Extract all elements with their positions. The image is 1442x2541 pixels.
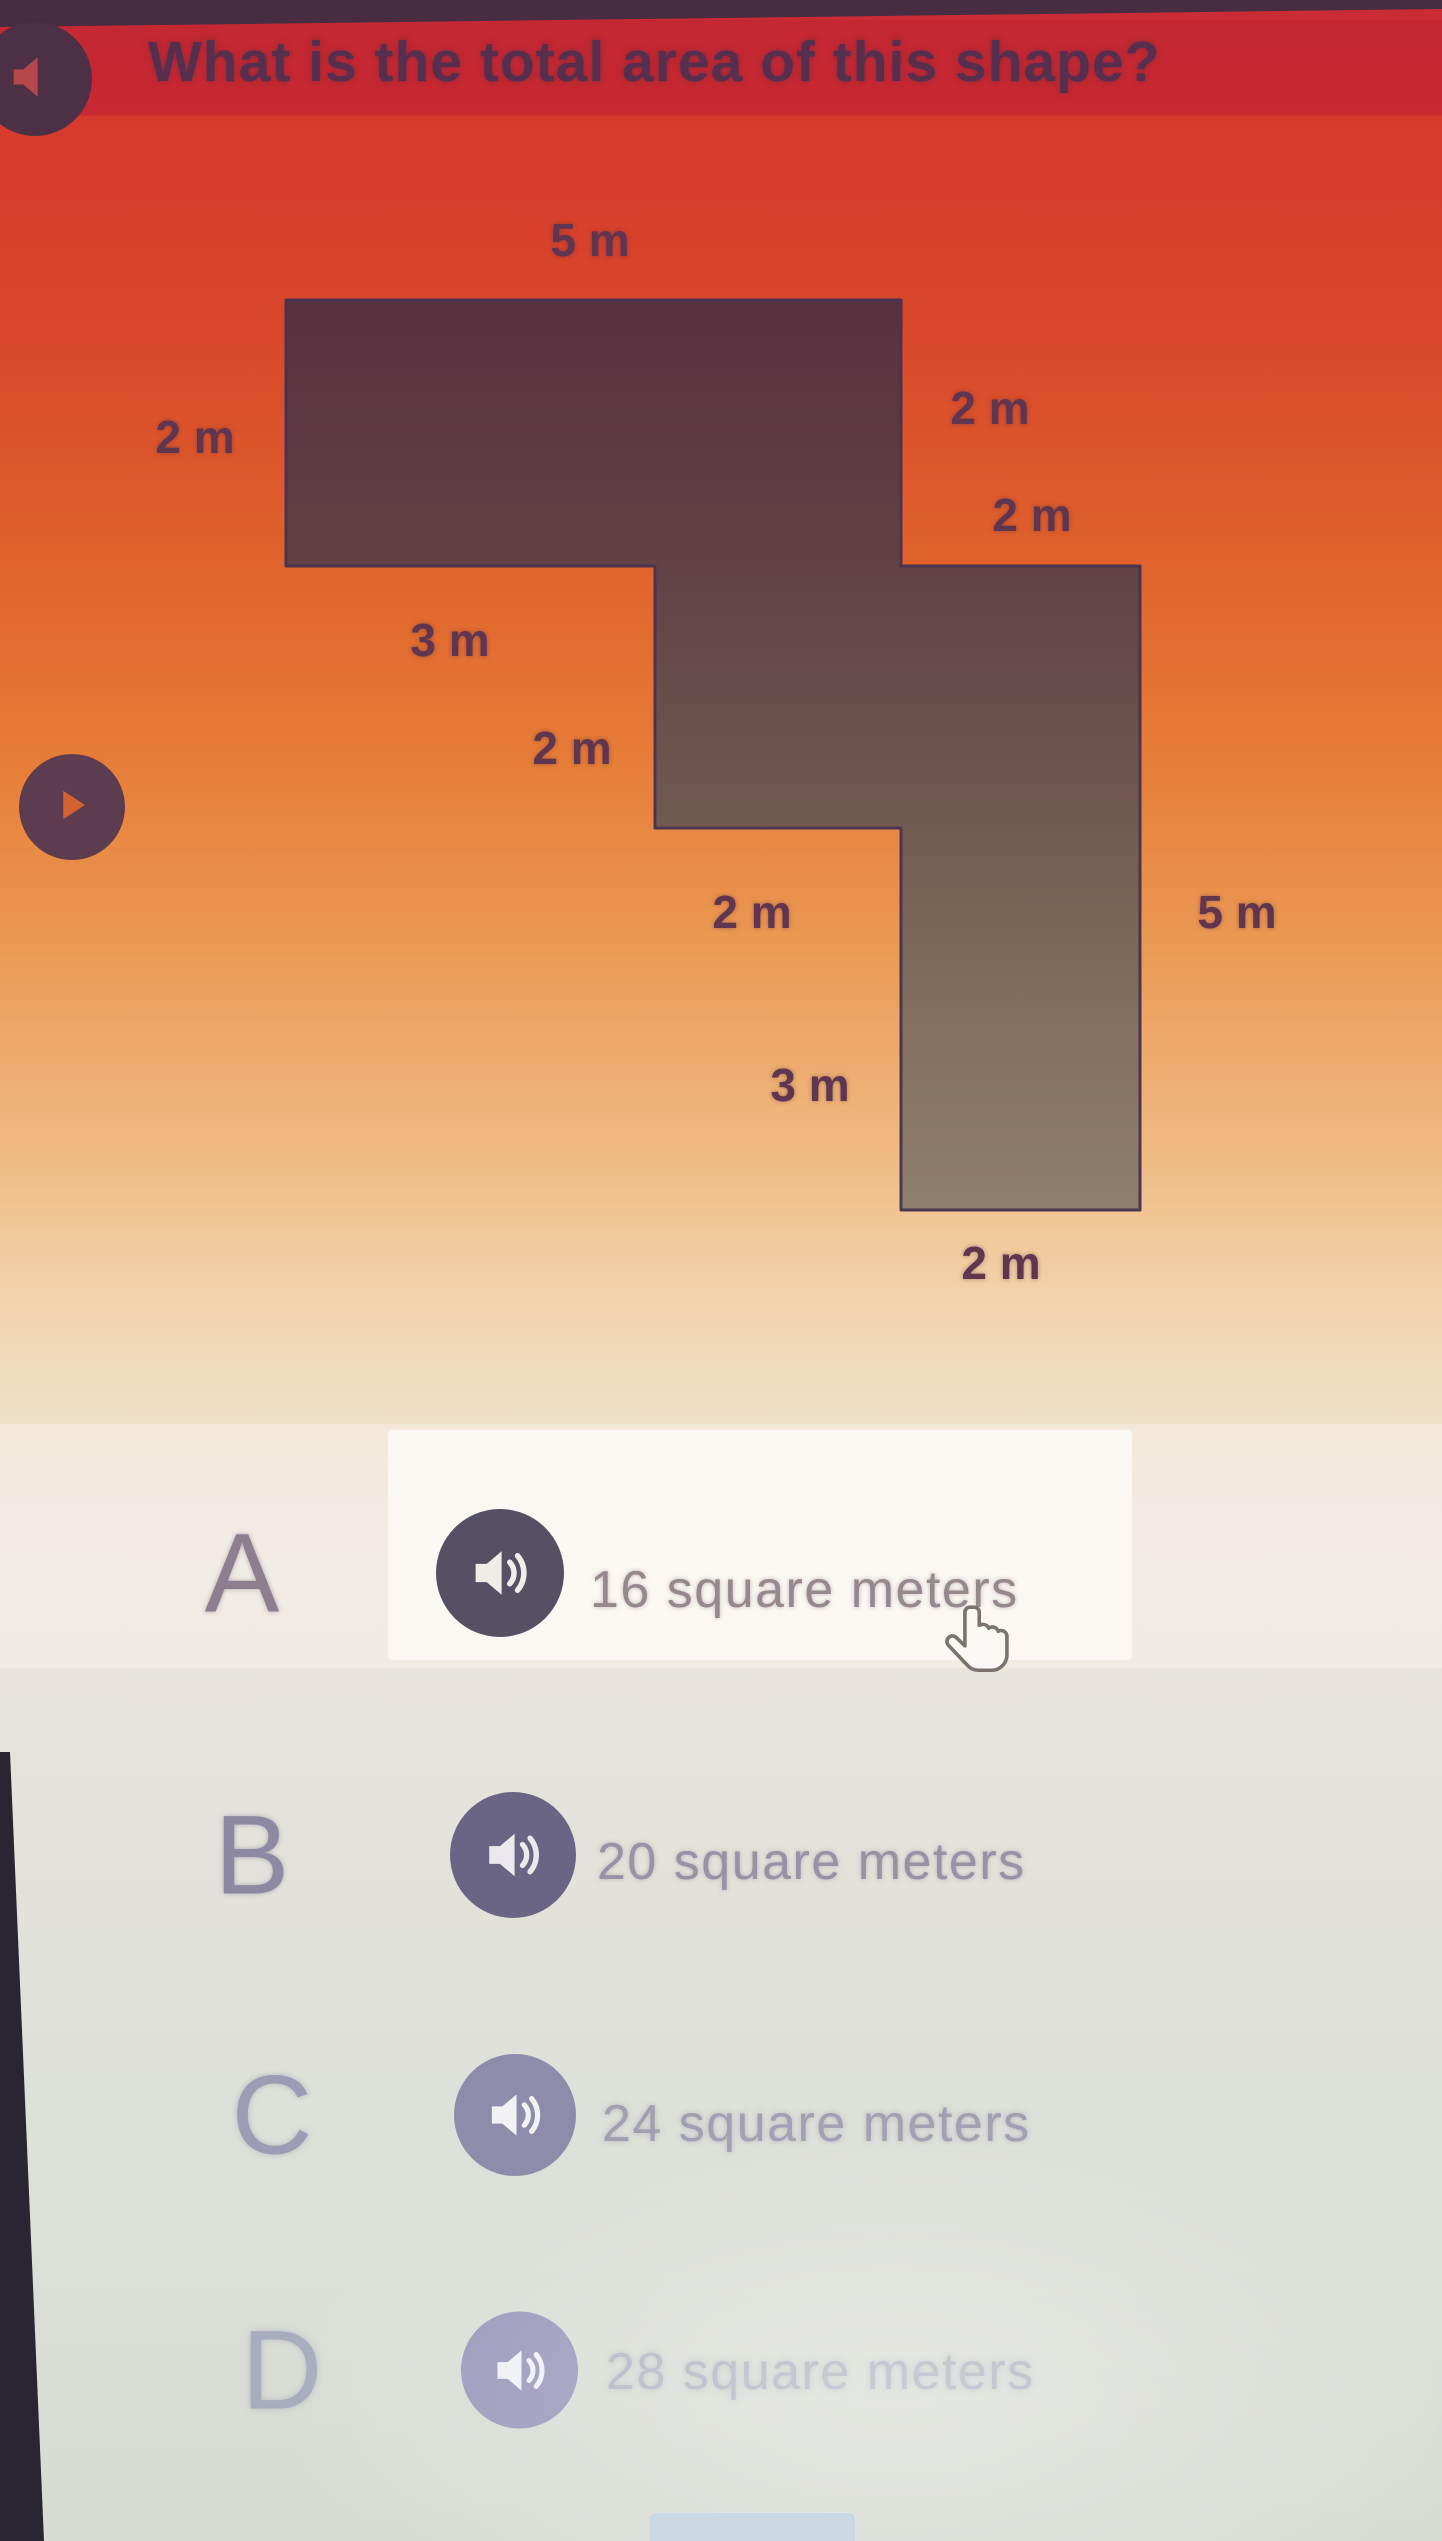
dimension-label-lower-left: 3 m [770, 1058, 849, 1112]
dimension-label-upper-left: 2 m [155, 410, 234, 464]
answer-c-speaker-button[interactable] [454, 2054, 576, 2176]
answer-text-a: 16 square meters [590, 1560, 1019, 1620]
dimension-label-top: 5 m [550, 213, 629, 267]
shape-diagram [0, 0, 1442, 1320]
quiz-screen: What is the total area of this shape? 5 … [0, 0, 1442, 2541]
question-text: What is the total area of this shape? [148, 29, 1161, 95]
answer-letter-d: D [242, 2306, 323, 2435]
composite-shape-polygon [286, 300, 1140, 1210]
answer-option-b[interactable]: B 20 square meters [160, 1760, 1240, 1950]
screen-bezel-edge [0, 1752, 50, 2541]
dimension-label-middle-left: 2 m [532, 721, 611, 775]
play-icon [46, 779, 98, 836]
answer-a-speaker-button[interactable] [436, 1509, 564, 1637]
dimension-label-right: 5 m [1197, 885, 1276, 939]
speaker-waves-icon [461, 1534, 539, 1612]
answer-letter-a: A [205, 1509, 280, 1638]
answer-text-c: 24 square meters [602, 2094, 1031, 2154]
dimension-label-upper-right: 2 m [950, 381, 1029, 435]
answer-d-speaker-button[interactable] [461, 2312, 578, 2429]
answer-letter-b: B [215, 1791, 290, 1920]
dimension-label-bottom: 2 m [961, 1236, 1040, 1290]
dimension-label-right-step: 2 m [992, 488, 1071, 542]
speaker-waves-icon [475, 1817, 551, 1893]
speaker-icon [3, 45, 67, 114]
answer-option-a[interactable]: A 16 square meters [160, 1478, 1240, 1668]
answer-b-speaker-button[interactable] [450, 1792, 576, 1918]
answer-letter-c: C [232, 2051, 313, 2180]
answer-option-d[interactable]: D 28 square meters [160, 2275, 1240, 2465]
speaker-waves-icon [478, 2078, 552, 2152]
answer-text-b: 20 square meters [597, 1832, 1026, 1892]
dimension-label-upper-bottom: 3 m [410, 613, 489, 667]
dimension-label-middle-step: 2 m [712, 885, 791, 939]
read-aloud-button[interactable] [19, 754, 125, 860]
answer-option-c[interactable]: C 24 square meters [160, 2020, 1240, 2210]
answer-text-d: 28 square meters [606, 2342, 1035, 2402]
speaker-waves-icon [484, 2334, 556, 2406]
bottom-bar-fragment [650, 2513, 855, 2541]
